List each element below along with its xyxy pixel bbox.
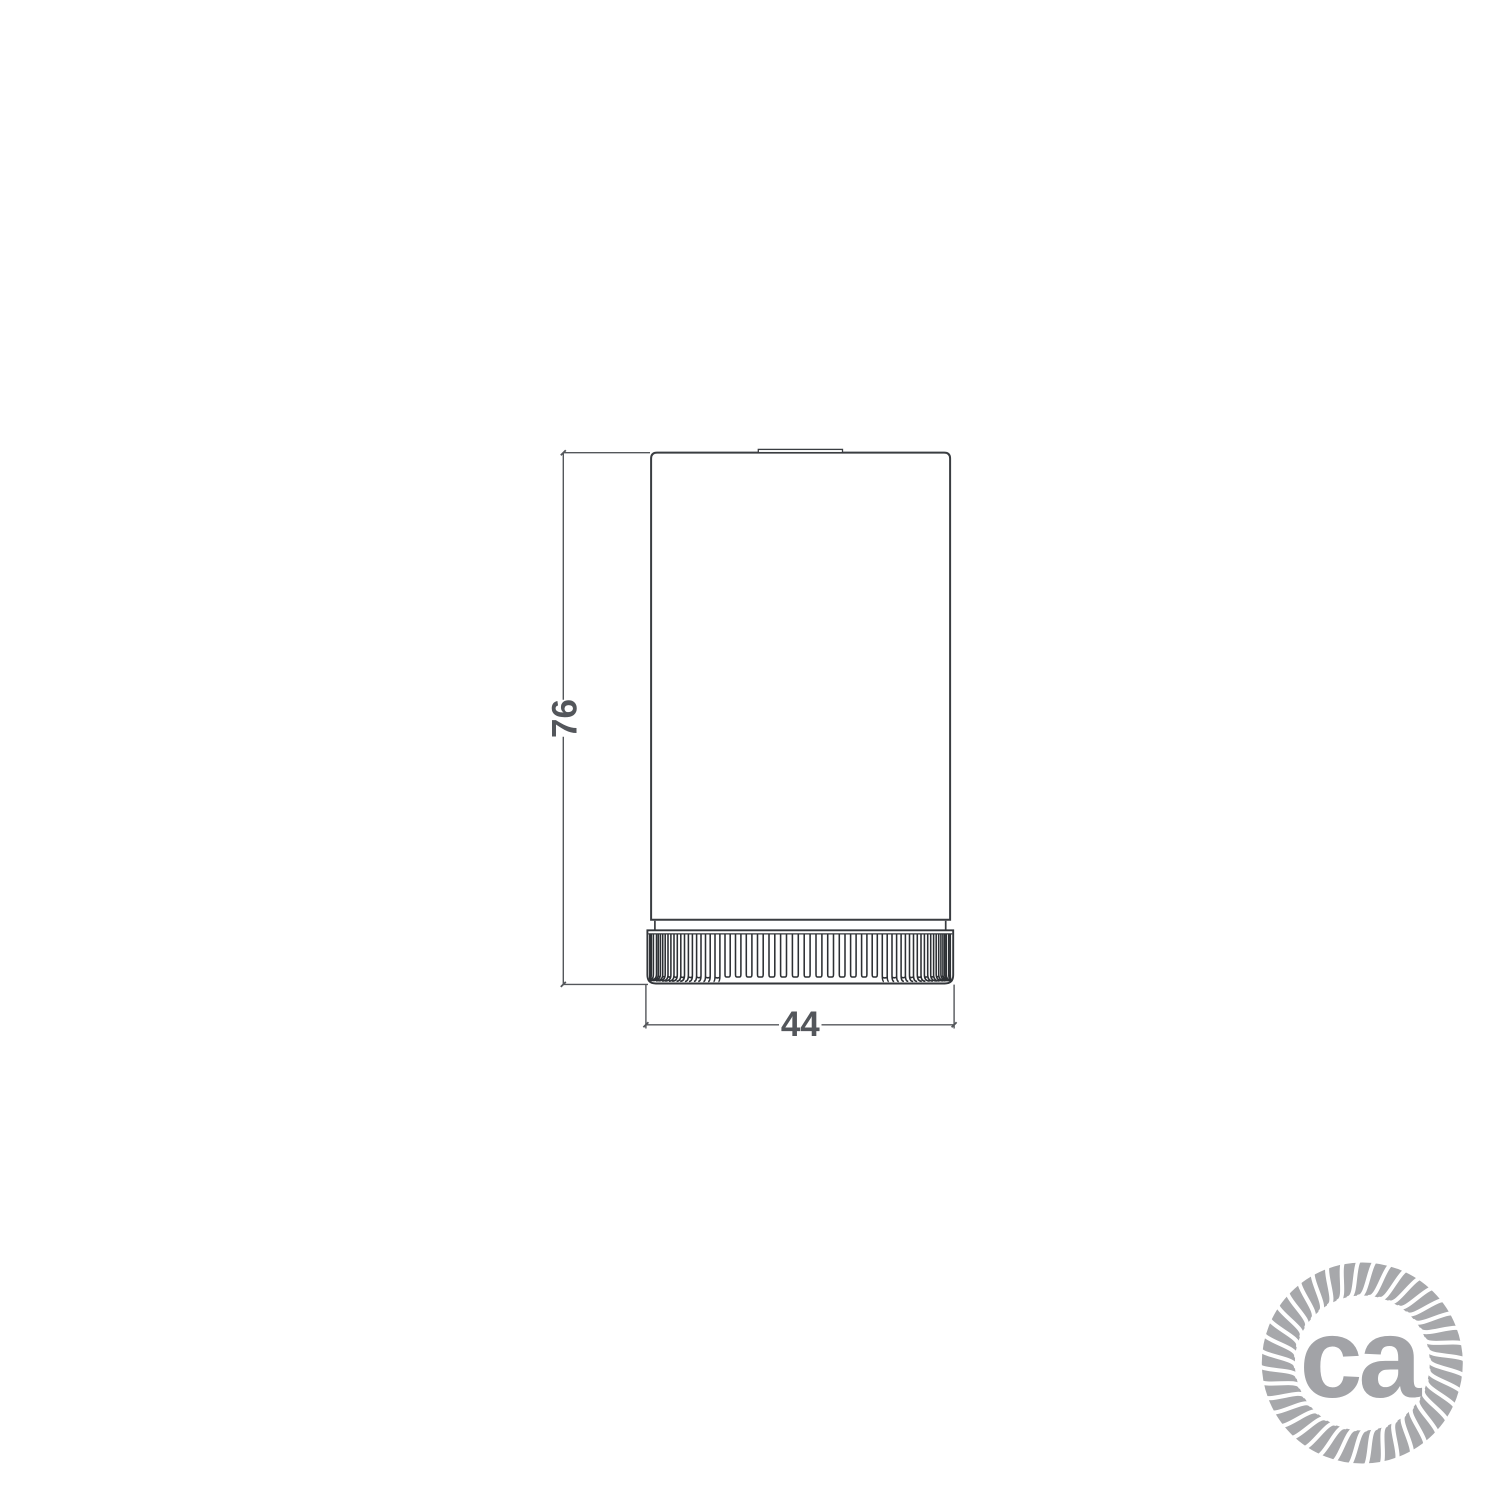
svg-text:ca: ca	[1300, 1295, 1423, 1421]
svg-text:44: 44	[781, 1005, 820, 1044]
svg-text:76: 76	[546, 699, 585, 738]
